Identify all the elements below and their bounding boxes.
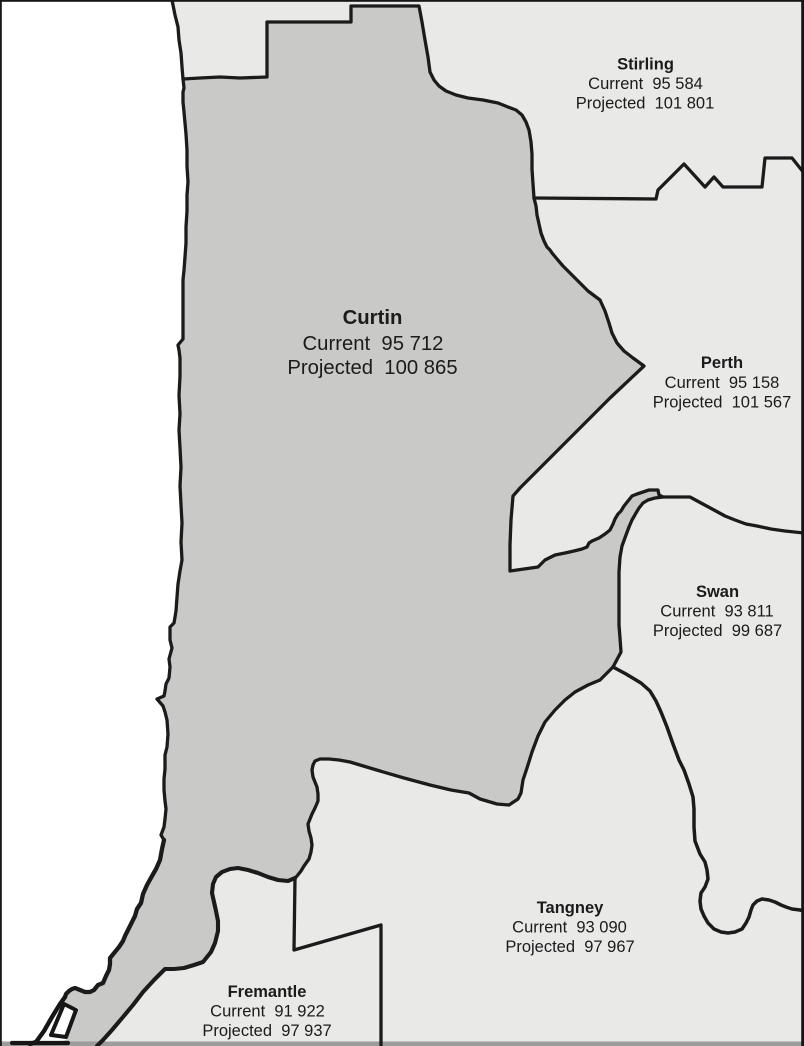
svg-text:Projected 99 687: Projected 99 687 — [653, 622, 782, 640]
svg-text:Projected 101 567: Projected 101 567 — [653, 394, 792, 412]
svg-text:Current 95 584: Current 95 584 — [588, 75, 703, 93]
svg-text:Projected 100 865: Projected 100 865 — [287, 357, 457, 379]
svg-text:Stirling: Stirling — [617, 56, 674, 74]
svg-text:Current 91 922: Current 91 922 — [210, 1003, 325, 1021]
svg-text:Current 95 158: Current 95 158 — [665, 374, 780, 392]
svg-text:Tangney: Tangney — [537, 899, 604, 917]
svg-text:Perth: Perth — [701, 354, 743, 372]
svg-text:Curtin: Curtin — [343, 307, 403, 329]
svg-text:Fremantle: Fremantle — [228, 983, 307, 1001]
svg-text:Swan: Swan — [696, 583, 739, 601]
svg-text:Projected 97 937: Projected 97 937 — [202, 1022, 331, 1040]
svg-text:Current 93 090: Current 93 090 — [512, 919, 627, 937]
svg-text:Projected 97 967: Projected 97 967 — [505, 938, 634, 956]
svg-text:Current 93 811: Current 93 811 — [660, 603, 773, 621]
svg-text:Projected 101 801: Projected 101 801 — [576, 95, 715, 113]
svg-text:Current 95 712: Current 95 712 — [303, 333, 444, 355]
